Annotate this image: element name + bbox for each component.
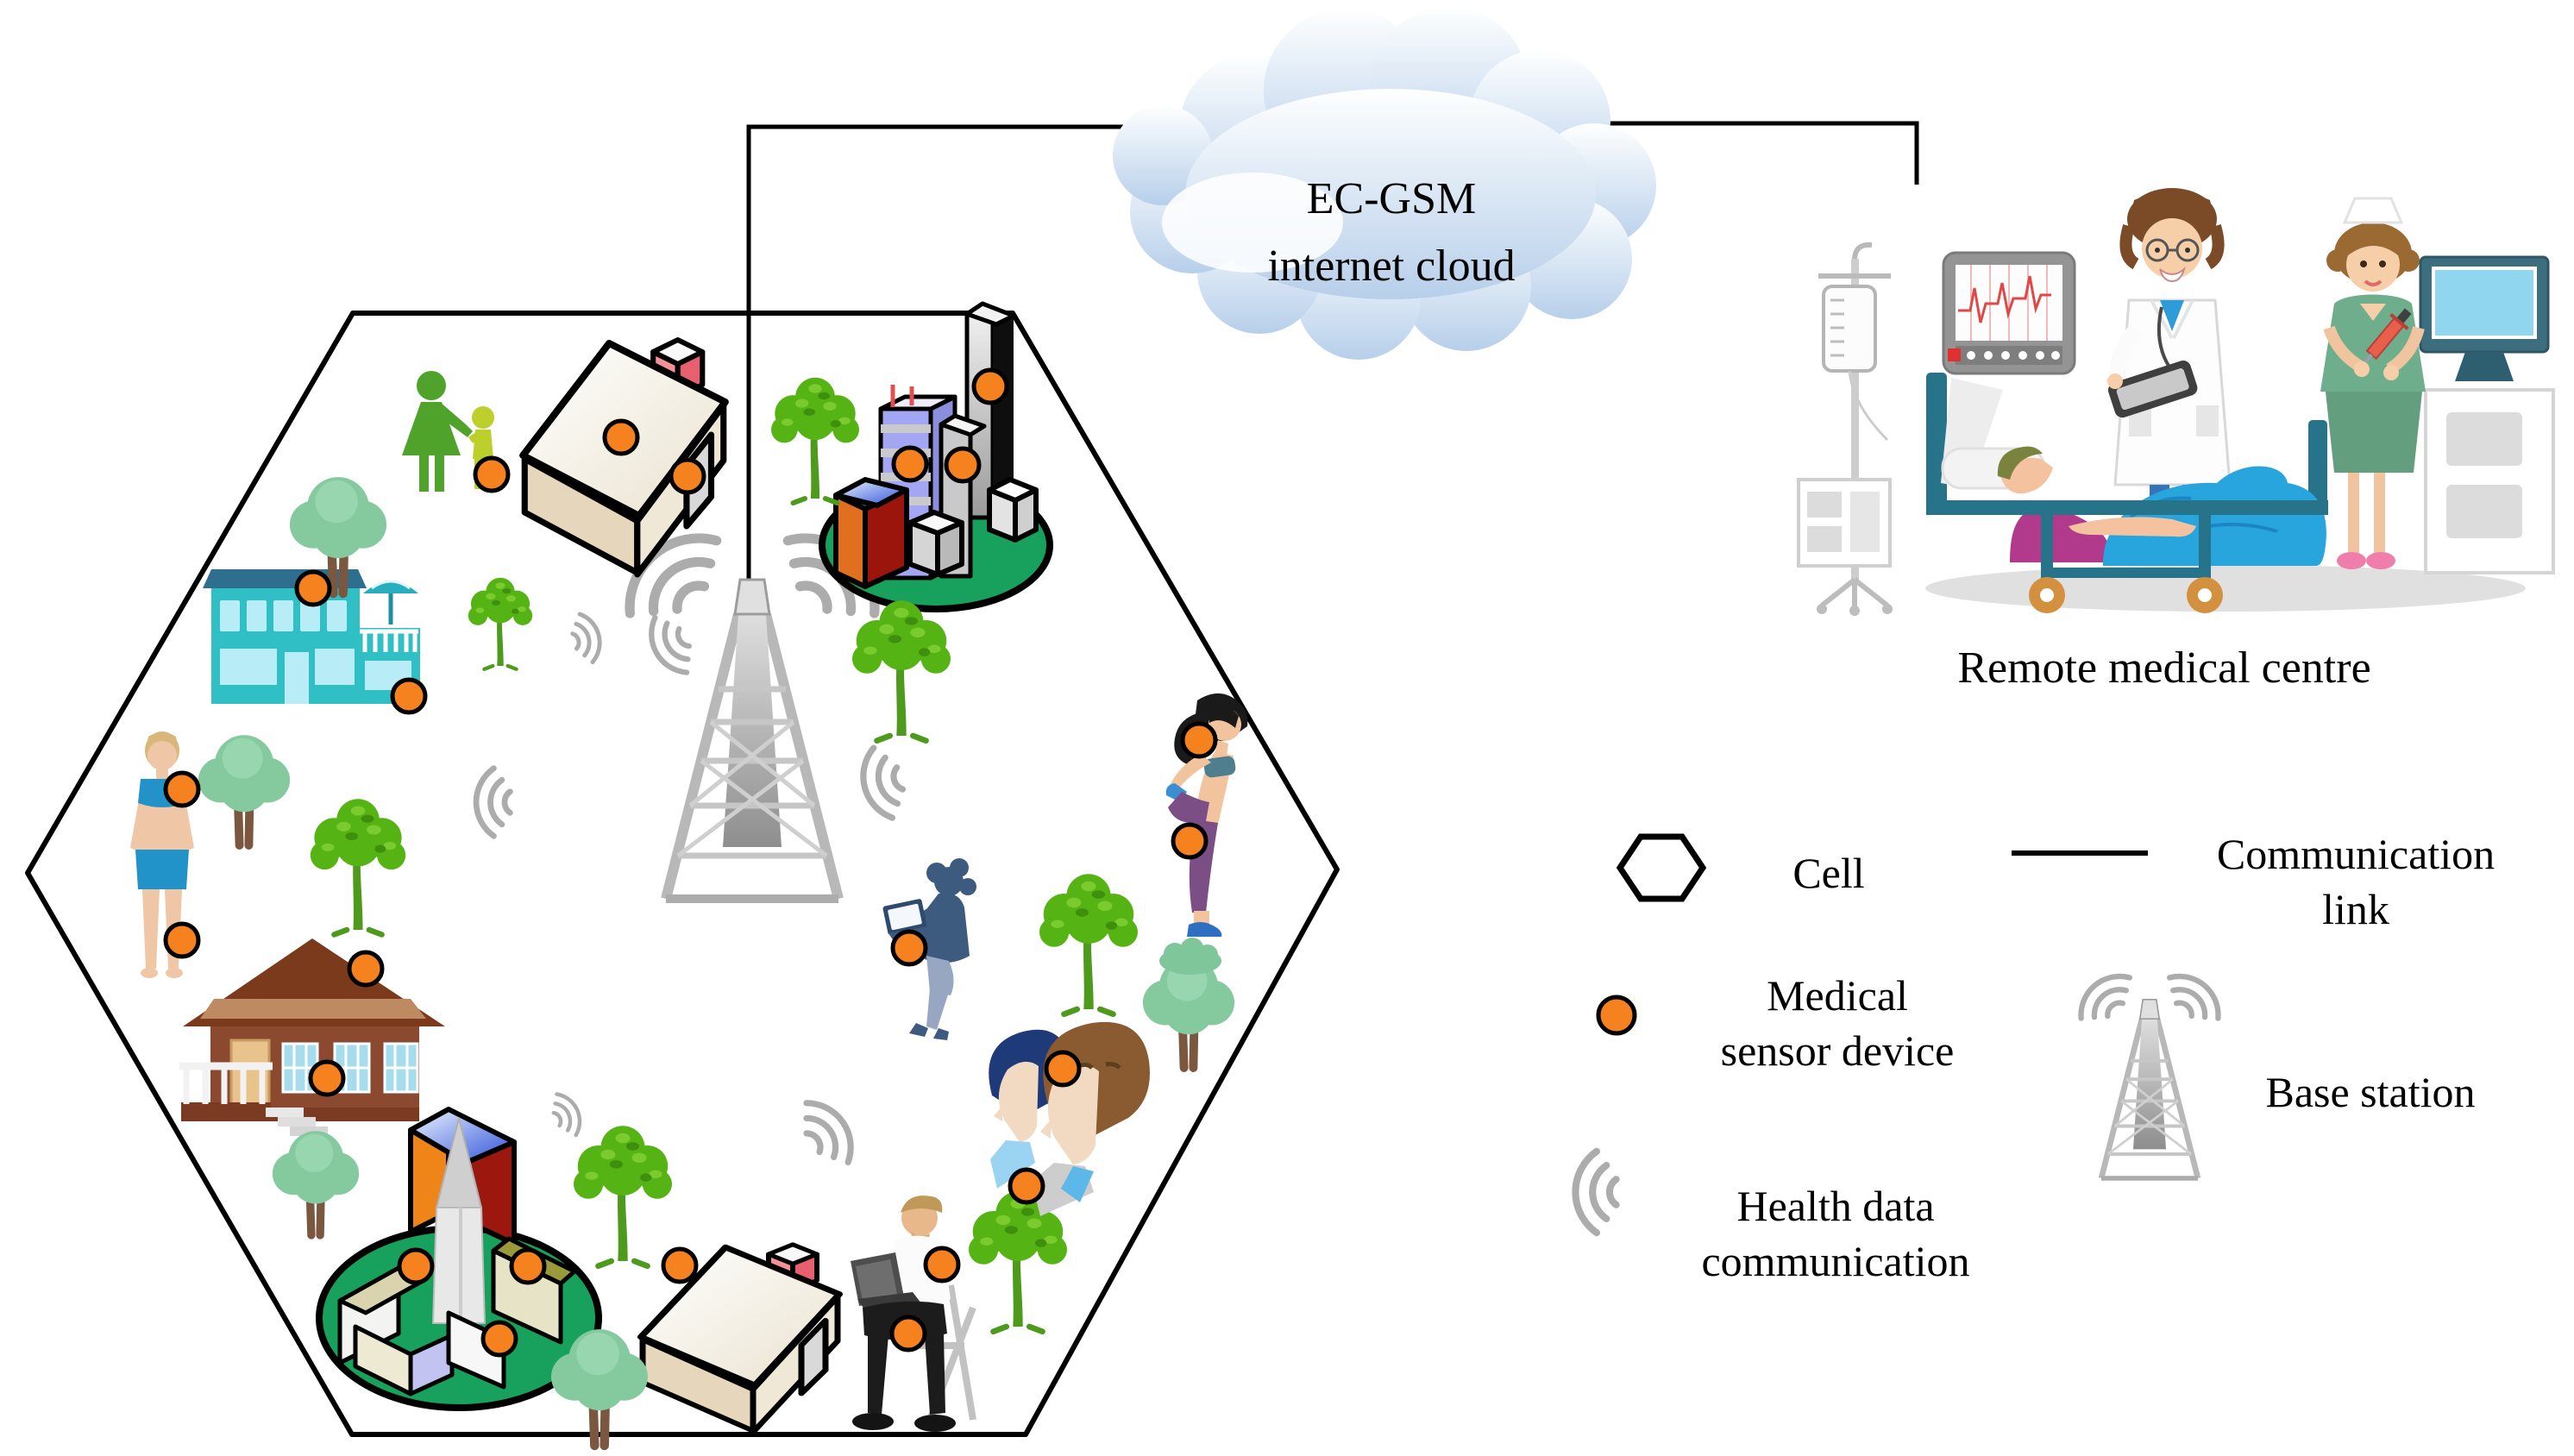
legend-medical-sensor-label: Medical sensor device: [1665, 968, 2010, 1078]
legend-medical-sensor-line1: Medical: [1665, 968, 2010, 1023]
sensor-dot: [166, 924, 198, 957]
sensor-dot: [1010, 1170, 1043, 1202]
sensor-dot: [297, 572, 330, 605]
cloud-label-line2: internet cloud: [1219, 238, 1564, 296]
sensor-dot: [1183, 724, 1215, 756]
remote-medical-centre-label: Remote medical centre: [1905, 640, 2423, 698]
sensor-dot: [399, 1250, 432, 1283]
sensor-dot: [349, 952, 382, 985]
sensor-dot: [1046, 1052, 1079, 1085]
sensor-dot: [671, 460, 704, 493]
sensor-dot: [392, 680, 425, 712]
legend-cell-icon: [1620, 837, 1703, 899]
sensor-dot: [663, 1249, 696, 1282]
sensor-dot: [926, 1248, 958, 1281]
sensor-dot: [311, 1062, 343, 1095]
legend-health-data-icon: [1575, 1152, 1616, 1233]
nurse: [2320, 198, 2426, 569]
legend-communication-link-line1: Communication: [2183, 826, 2528, 882]
legend-health-data-label: Health data communication: [1663, 1178, 2008, 1289]
legend-health-data-line1: Health data: [1663, 1178, 2008, 1233]
iv-drip-stand-icon: [1799, 245, 1893, 616]
legend-medical-sensor-line2: sensor device: [1665, 1023, 2010, 1078]
sensor-dot: [894, 448, 926, 480]
remote-medical-centre: [1799, 188, 2553, 616]
sensor-dot: [892, 1317, 925, 1350]
sensor-dot: [893, 932, 926, 964]
legend-health-data-line2: communication: [1663, 1233, 2008, 1289]
sensor-dot: [974, 370, 1007, 403]
legend-sensor-dot-icon: [1598, 997, 1635, 1033]
cabin-windows: [283, 1044, 417, 1092]
cloud-label-line1: EC-GSM: [1219, 171, 1564, 229]
legend-communication-link-label: Communication link: [2183, 826, 2528, 937]
cube-white: [989, 480, 1036, 540]
figure-canvas: EC-GSM internet cloud Remote medical cen…: [0, 0, 2574, 1456]
legend-base-station-label: Base station: [2198, 1064, 2543, 1120]
legend-cell-label: Cell: [1717, 845, 1941, 901]
building-red: [836, 480, 907, 587]
sensor-dot: [166, 773, 198, 806]
cube-gray-front: [910, 512, 962, 574]
sensor-dot: [512, 1250, 544, 1283]
sensor-dot: [475, 458, 508, 491]
sensor-dot: [946, 449, 979, 481]
monitor-station-icon: [2420, 257, 2553, 573]
legend-communication-link-line2: link: [2183, 882, 2528, 937]
ecg-monitor-icon: [1943, 253, 2075, 373]
sensor-dot: [1173, 825, 1206, 857]
sensor-dot: [605, 421, 637, 454]
sensor-dot: [483, 1322, 516, 1355]
nurse-cap-icon: [2345, 198, 2401, 223]
